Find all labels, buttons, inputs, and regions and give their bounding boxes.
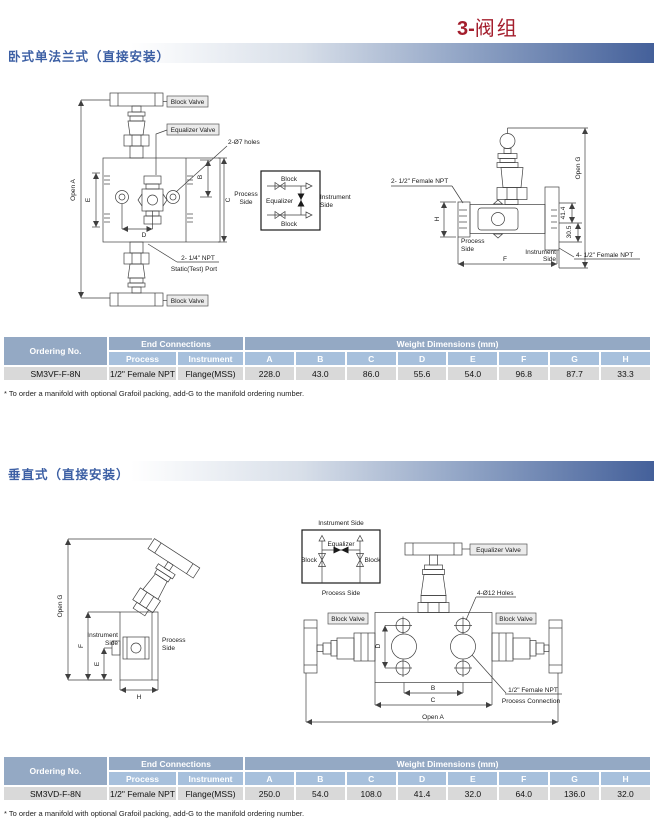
diagram-row-2: Open G F E Instru — [0, 515, 654, 745]
cell-dim: 54.0 — [296, 787, 345, 800]
header-instrument: Instrument — [178, 352, 243, 365]
header-dim: B — [296, 772, 345, 785]
label-block-valve-left: Block Valve — [331, 616, 365, 623]
cell-instrument: Flange(MSS) — [178, 367, 243, 380]
page-title-text: 阀组 — [475, 18, 519, 40]
header-dim: A — [245, 772, 294, 785]
cell-dim: 43.0 — [296, 367, 345, 380]
label-block-valve-bottom: Block Valve — [171, 298, 205, 305]
cell-dim: 136.0 — [550, 787, 599, 800]
table-row: SM3VD-F-8N 1/2" Female NPT Flange(MSS) 2… — [4, 787, 650, 800]
label-dim-b: B — [431, 685, 435, 692]
label-open-a: Open A — [70, 178, 77, 200]
cell-dim: 86.0 — [347, 367, 396, 380]
label-process-side: Process Side — [322, 590, 361, 597]
label-female-npt-2: 2- 1/2" Female NPT — [391, 178, 448, 185]
label-process-side: Side — [239, 199, 252, 206]
header-dim: E — [448, 772, 497, 785]
label-block-valve-right: Block Valve — [499, 616, 533, 623]
spec-table-1: Ordering No. End Connections Weight Dime… — [2, 335, 652, 382]
label-dim-b: B — [197, 175, 204, 179]
cell-dim: 33.3 — [601, 367, 650, 380]
label-process-side: Process — [162, 637, 186, 644]
header-ordering-no: Ordering No. — [4, 757, 107, 785]
label-dim-c: C — [225, 197, 232, 202]
header-dim: D — [398, 772, 447, 785]
label-block-bottom: Block — [281, 221, 298, 228]
label-process-side: Process — [461, 238, 485, 245]
label-process-connection: Process Connection — [502, 698, 561, 705]
cell-ordering-no: SM3VD-F-8N — [4, 787, 107, 800]
header-dim: G — [550, 352, 599, 365]
flow-schematic-1: Process Side Block Equalizer Block Instr… — [234, 171, 351, 230]
label-instrument-side: Side — [105, 640, 118, 647]
cell-ordering-no: SM3VF-F-8N — [4, 367, 107, 380]
label-dim-h: H — [434, 216, 441, 221]
cell-dim: 32.0 — [448, 787, 497, 800]
cell-dim: 228.0 — [245, 367, 294, 380]
label-dim-e: E — [94, 661, 101, 666]
header-dim: F — [499, 352, 548, 365]
header-dim: B — [296, 352, 345, 365]
vertical-manifold-front-view: Equalizer Valve D — [304, 543, 562, 722]
header-dim: D — [398, 352, 447, 365]
label-instrument-side: Instrument — [525, 249, 556, 256]
header-end-connections: End Connections — [109, 757, 243, 770]
flow-schematic-2: Instrument Side Equalizer Block Block Pr… — [301, 520, 381, 597]
label-instrument-side: Side — [320, 202, 333, 209]
header-weight-dimensions: Weight Dimensions (mm) — [245, 337, 650, 350]
cell-instrument: Flange(MSS) — [178, 787, 243, 800]
label-instrument-side: Instrument Side — [318, 520, 364, 527]
label-dim-f: F — [78, 644, 85, 648]
manifold-side-view: 2- 1/2" Female NPT H Proces — [391, 128, 640, 268]
cell-dim: 55.6 — [398, 367, 447, 380]
label-dim-d: D — [142, 232, 147, 239]
footnote-1: * To order a manifold with optional Graf… — [4, 389, 304, 398]
header-process: Process — [109, 772, 176, 785]
manifold-front-view: Open A — [70, 93, 261, 306]
footnote-2: * To order a manifold with optional Graf… — [4, 809, 304, 818]
vertical-manifold-side-view: Open G F E Instru — [57, 539, 200, 701]
table-row: SM3VF-F-8N 1/2" Female NPT Flange(MSS) 2… — [4, 367, 650, 380]
header-dim: E — [448, 352, 497, 365]
cell-dim: 41.4 — [398, 787, 447, 800]
label-equalizer-valve: Equalizer Valve — [476, 547, 521, 554]
label-dim-c: C — [431, 697, 436, 704]
diagram-row-1: Open A — [0, 85, 654, 320]
label-dim-h: H — [137, 694, 142, 701]
page-title: 3-阀组 — [457, 12, 519, 41]
label-process-side: Side — [461, 246, 474, 253]
label-dim-f: F — [503, 256, 507, 263]
label-equalizer-valve: Equalizer Valve — [171, 127, 216, 134]
label-open-g: Open G — [575, 157, 582, 180]
section-heading-1: 卧式单法兰式（直接安装） — [8, 46, 170, 65]
label-dim-e: E — [85, 197, 92, 202]
label-block-valve-top: Block Valve — [171, 99, 205, 106]
label-instrument-side: Instrument — [320, 194, 351, 201]
header-dim: H — [601, 772, 650, 785]
spec-table: Ordering No. End Connections Weight Dime… — [2, 755, 652, 802]
page-title-number: 3- — [457, 18, 475, 40]
cell-process: 1/2" Female NPT — [109, 787, 176, 800]
label-block-left: Block — [301, 557, 318, 564]
label-equalizer: Equalizer — [266, 198, 294, 205]
label-static-port: Static(Test) Port — [171, 266, 217, 273]
header-dim: A — [245, 352, 294, 365]
header-weight-dimensions: Weight Dimensions (mm) — [245, 757, 650, 770]
header-dim: C — [347, 352, 396, 365]
label-npt: 2- 1/4" NPT — [181, 255, 215, 262]
label-instrument-side: Side — [543, 256, 556, 263]
label-holes-1: 2-Ø7 holes — [228, 139, 261, 146]
header-end-connections: End Connections — [109, 337, 243, 350]
spec-table: Ordering No. End Connections Weight Dime… — [2, 335, 652, 382]
label-dim-d: D — [375, 643, 382, 648]
spec-table-2: Ordering No. End Connections Weight Dime… — [2, 755, 652, 802]
catalog-page: 3-阀组 卧式单法兰式（直接安装） Open A — [0, 0, 654, 826]
label-block-right: Block — [365, 557, 382, 564]
label-npt-process: 1/2" Female NPT — [508, 687, 558, 694]
label-process-side: Process — [234, 191, 258, 198]
header-process: Process — [109, 352, 176, 365]
label-equalizer: Equalizer — [327, 541, 355, 548]
cell-dim: 54.0 — [448, 367, 497, 380]
section-heading-2: 垂直式（直接安装） — [8, 464, 130, 483]
label-dim-30-5: 30.5 — [566, 225, 573, 238]
header-dim: C — [347, 772, 396, 785]
label-instrument-side: Instrument — [87, 632, 118, 639]
label-holes-2: 4-Ø12 Holes — [477, 590, 514, 597]
label-female-npt-4: 4- 1/2" Female NPT — [576, 252, 633, 259]
header-dim: H — [601, 352, 650, 365]
cell-dim: 32.0 — [601, 787, 650, 800]
label-open-g: Open G — [57, 595, 64, 618]
header-ordering-no: Ordering No. — [4, 337, 107, 365]
header-dim: G — [550, 772, 599, 785]
label-open-a: Open A — [422, 714, 444, 721]
cell-dim: 96.8 — [499, 367, 548, 380]
header-dim: F — [499, 772, 548, 785]
cell-dim: 87.7 — [550, 367, 599, 380]
label-dim-41-4: 41.4 — [560, 206, 567, 219]
cell-process: 1/2" Female NPT — [109, 367, 176, 380]
label-block-top: Block — [281, 176, 298, 183]
header-instrument: Instrument — [178, 772, 243, 785]
cell-dim: 108.0 — [347, 787, 396, 800]
cell-dim: 64.0 — [499, 787, 548, 800]
label-process-side: Side — [162, 645, 175, 652]
cell-dim: 250.0 — [245, 787, 294, 800]
